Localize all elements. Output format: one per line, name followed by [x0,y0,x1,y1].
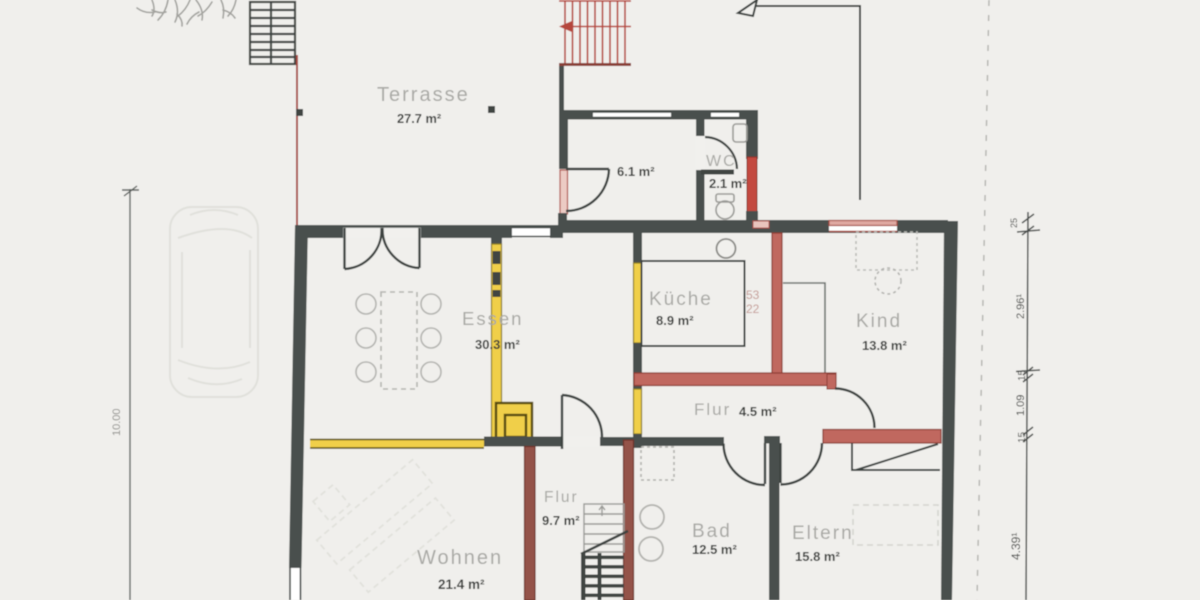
svg-text:Flur: Flur [694,400,731,419]
svg-text:1.09: 1.09 [1015,395,1027,416]
svg-text:Küche: Küche [649,289,713,310]
svg-text:15.8 m²: 15.8 m² [795,549,840,564]
svg-text:9.7 m²: 9.7 m² [542,513,580,528]
svg-text:15: 15 [1017,369,1028,381]
svg-text:2.1 m²: 2.1 m² [709,176,747,191]
svg-text:8.9 m²: 8.9 m² [656,313,694,328]
svg-text:12.5 m²: 12.5 m² [692,542,737,557]
svg-text:10.00: 10.00 [111,408,123,436]
svg-text:Kind: Kind [856,311,902,332]
svg-text:21.4 m²: 21.4 m² [438,577,485,592]
svg-text:4.5 m²: 4.5 m² [739,404,777,419]
svg-text:WC: WC [706,153,737,170]
svg-text:Terrasse: Terrasse [377,84,470,106]
svg-text:15: 15 [1017,431,1028,443]
svg-text:53: 53 [746,288,760,302]
svg-text:13.8 m²: 13.8 m² [862,338,907,353]
svg-text:Wohnen: Wohnen [417,547,503,569]
svg-text:25: 25 [1009,218,1019,228]
svg-text:6.1 m²: 6.1 m² [617,164,655,179]
svg-text:Bad: Bad [692,521,732,542]
svg-text:22: 22 [746,302,760,316]
svg-text:27.7 m²: 27.7 m² [397,111,441,126]
svg-text:Essen: Essen [462,308,523,329]
svg-text:Flur: Flur [544,489,579,506]
svg-text:4.39¹: 4.39¹ [1009,533,1023,560]
svg-text:2.96¹: 2.96¹ [1015,294,1027,319]
svg-text:30.3 m²: 30.3 m² [475,337,520,352]
svg-text:Eltern: Eltern [792,523,854,544]
